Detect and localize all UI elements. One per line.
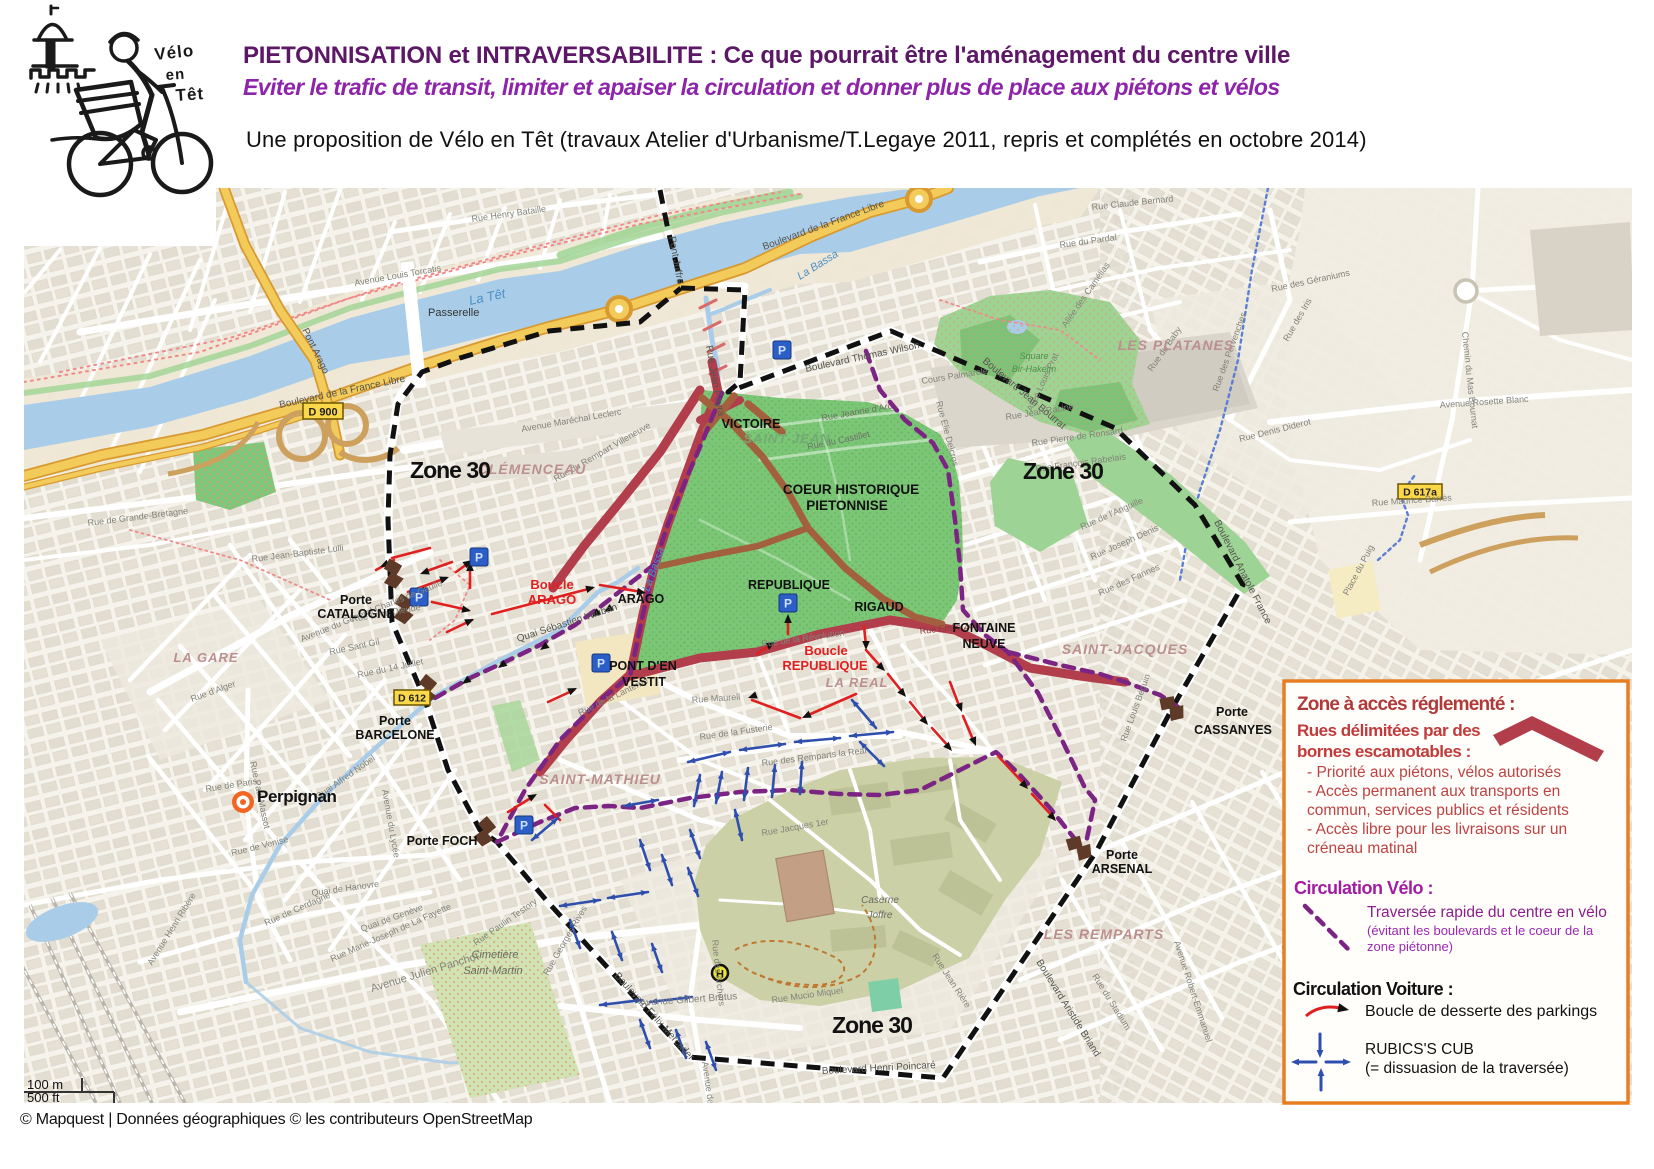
svg-text:ARAGO: ARAGO — [528, 592, 576, 607]
svg-text:Têt: Têt — [175, 84, 205, 105]
svg-text:CATALOGNE: CATALOGNE — [317, 607, 394, 621]
svg-text:créneau matinal: créneau matinal — [1307, 840, 1417, 857]
svg-text:- Priorité aux piétons, vélos: - Priorité aux piétons, vélos autorisés — [1307, 764, 1561, 781]
svg-text:(évitant les boulevards et le: (évitant les boulevards et le coeur de l… — [1367, 923, 1594, 938]
svg-text:- Accès permanent aux transpor: - Accès permanent aux transports en — [1307, 783, 1560, 800]
svg-text:ARSENAL: ARSENAL — [1092, 862, 1153, 876]
svg-text:Square: Square — [1019, 351, 1048, 361]
svg-text:Eviter le trafic de transit, l: Eviter le trafic de transit, limiter et … — [243, 74, 1280, 100]
svg-text:zone piétonne): zone piétonne) — [1367, 939, 1453, 954]
svg-text:- Accès libre pour les livrais: - Accès libre pour les livraisons sur un — [1307, 821, 1567, 838]
svg-text:COEUR HISTORIQUE: COEUR HISTORIQUE — [783, 482, 919, 497]
svg-text:Boucle: Boucle — [530, 577, 573, 592]
svg-text:Boucle de desserte des parking: Boucle de desserte des parkings — [1365, 1003, 1597, 1020]
svg-text:P: P — [597, 657, 605, 671]
svg-text:Circulation Vélo :: Circulation Vélo : — [1294, 878, 1433, 898]
svg-text:SAINT-JEAN: SAINT-JEAN — [743, 431, 830, 446]
svg-text:NEUVE: NEUVE — [962, 637, 1005, 651]
svg-text:(= dissuasion de la traversée): (= dissuasion de la traversée) — [1365, 1060, 1569, 1077]
svg-text:Perpignan: Perpignan — [257, 787, 337, 806]
svg-text:LES REMPARTS: LES REMPARTS — [1044, 926, 1164, 942]
svg-text:Joffre: Joffre — [866, 910, 892, 921]
svg-text:PONT D'EN: PONT D'EN — [609, 659, 677, 673]
svg-text:REPUBLIQUE: REPUBLIQUE — [748, 578, 830, 592]
svg-text:PIETONNISATION et INTRAVERSABI: PIETONNISATION et INTRAVERSABILITE : Ce … — [243, 42, 1290, 69]
svg-text:Porte: Porte — [1216, 705, 1248, 719]
svg-text:Porte: Porte — [1106, 848, 1138, 862]
svg-text:Rues délimitées par des: Rues délimitées par des — [1297, 721, 1480, 740]
svg-text:P: P — [784, 597, 792, 611]
svg-text:Zone 30: Zone 30 — [832, 1012, 912, 1038]
svg-text:commun, services publics et ré: commun, services publics et résidents — [1307, 802, 1569, 819]
svg-text:CLÉMENCEAU: CLÉMENCEAU — [478, 461, 587, 477]
svg-text:VESTIT: VESTIT — [622, 675, 666, 689]
svg-text:© Mapquest | Données géographi: © Mapquest | Données géographiques © les… — [20, 1111, 533, 1128]
svg-text:RIGAUD: RIGAUD — [854, 600, 903, 614]
svg-text:BARCELONE: BARCELONE — [355, 728, 434, 742]
svg-text:Porte FOCH: Porte FOCH — [407, 834, 478, 848]
svg-text:P: P — [520, 819, 528, 833]
svg-text:Saint-Martin: Saint-Martin — [463, 965, 522, 977]
svg-text:RUBICS'S CUB: RUBICS'S CUB — [1365, 1041, 1474, 1058]
svg-text:bornes escamotables :: bornes escamotables : — [1297, 742, 1471, 761]
svg-text:LES PLATANES: LES PLATANES — [1118, 337, 1235, 353]
svg-text:Porte: Porte — [340, 593, 372, 607]
svg-text:Une proposition de Vélo en Têt: Une proposition de Vélo en Têt (travaux … — [246, 127, 1367, 152]
svg-text:PIETONNISE: PIETONNISE — [806, 498, 888, 513]
svg-text:Porte: Porte — [379, 714, 411, 728]
svg-text:SAINT-JACQUES: SAINT-JACQUES — [1062, 641, 1189, 657]
svg-text:Zone 30: Zone 30 — [410, 457, 490, 483]
svg-text:Boucle: Boucle — [804, 643, 847, 658]
svg-text:REPUBLIQUE: REPUBLIQUE — [782, 658, 868, 673]
svg-text:D 612: D 612 — [398, 693, 426, 705]
svg-text:Traversée rapide du centre en: Traversée rapide du centre en vélo — [1367, 904, 1607, 921]
svg-text:en: en — [165, 66, 186, 84]
svg-text:VICTOIRE: VICTOIRE — [722, 417, 781, 431]
svg-text:Circulation Voiture :: Circulation Voiture : — [1293, 979, 1453, 999]
svg-text:Passerelle: Passerelle — [428, 307, 479, 319]
svg-text:Zone à accès réglementé :: Zone à accès réglementé : — [1297, 694, 1515, 715]
svg-text:CASSANYES: CASSANYES — [1194, 723, 1272, 737]
svg-text:Zone 30: Zone 30 — [1023, 458, 1103, 484]
svg-text:FONTAINE: FONTAINE — [953, 621, 1016, 635]
svg-text:Bir-Hakeim: Bir-Hakeim — [1012, 364, 1057, 374]
svg-text:P: P — [475, 551, 483, 565]
svg-text:P: P — [778, 344, 786, 358]
svg-text:D 900: D 900 — [308, 407, 337, 419]
svg-text:LA REAL: LA REAL — [826, 675, 889, 690]
svg-text:SAINT-MATHIEU: SAINT-MATHIEU — [539, 771, 661, 787]
svg-text:Caserne: Caserne — [861, 895, 899, 906]
svg-text:LA GARE: LA GARE — [173, 650, 238, 665]
svg-text:ARAGO: ARAGO — [618, 592, 665, 606]
